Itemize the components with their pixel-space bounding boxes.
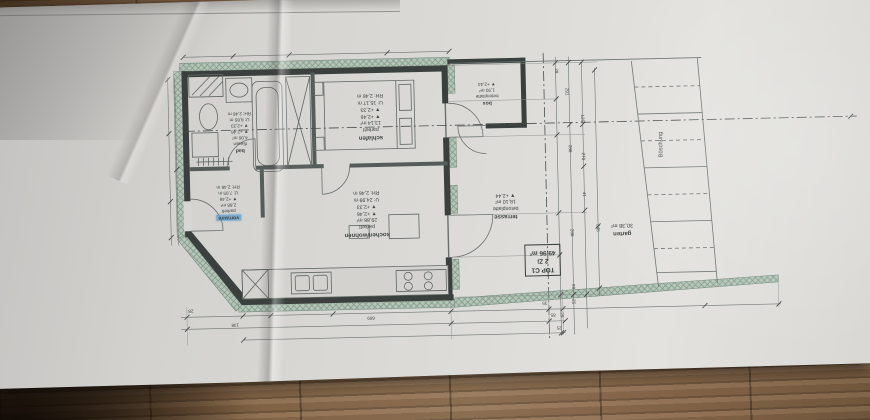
shower [189, 74, 223, 97]
room-floor: fliesen [228, 140, 251, 146]
room-height: RH: 2,46 m [344, 189, 389, 197]
room-name: bad [229, 146, 252, 153]
room-label-schlafen: schlafen parkett 13,14 m² ▼ +2,46 ▼ +2,3… [357, 92, 384, 141]
room-height: RH: 2,46 m [216, 184, 241, 191]
unit-id: TOP C1 [530, 264, 556, 273]
room-area: 4,06 m² [228, 134, 251, 140]
room-label-box: box betonplatte 1,93 m² ▼ +2,44 [475, 81, 498, 106]
room-level: ▼ +2,46 [357, 112, 383, 119]
room-perimeter: U: 7,05 m [216, 190, 241, 197]
dimension-number: 41 [582, 192, 587, 197]
room-height: RH: 2,46 m [357, 92, 383, 99]
dimension-number: 288 [570, 229, 575, 237]
room-label-vorraum: vorraum parkett 2,88 m² ▼ +2,46 U: 7,05 … [216, 184, 242, 221]
room-perimeter: U: 8,85 m [228, 117, 251, 123]
dimension-number: 125 [580, 114, 585, 122]
paper-sheet: schlafen parkett 13,14 m² ▼ +2,46 ▼ +2,3… [0, 0, 870, 420]
photo-of-floor-plan: schlafen parkett 13,14 m² ▼ +2,46 ▼ +2,3… [0, 0, 870, 420]
room-floor: betonplatte [476, 93, 499, 99]
room-label-bad: bad fliesen 4,06 m² ▼ +2,46 ▼ +2,33 U: 8… [228, 111, 252, 154]
room-perimeter: U: 15,17 m [357, 98, 383, 105]
dimension-number: 288 [568, 145, 573, 153]
washing-machine [192, 133, 219, 158]
radiator [196, 157, 232, 166]
room-floor: betonplatte [493, 204, 519, 211]
shaft-cross [286, 76, 312, 167]
room-name: box [476, 99, 499, 106]
room-name: terrasse [493, 211, 519, 219]
room-area: 13,14 m² [357, 119, 383, 126]
dimension-number: 28 [188, 309, 193, 314]
entry-opening [183, 201, 192, 231]
dimension-number: 99 [571, 284, 576, 289]
room-level: ▼ +2,33 [228, 122, 251, 128]
kitchen-counter [242, 265, 449, 299]
room-name: vorraum [216, 214, 241, 221]
room-label-kochen-wohnen: kochen/wohnen parkett 29,88 m² ▼ +2,46 ▼… [344, 189, 390, 238]
room-level: ▼ +2,44 [492, 191, 518, 198]
slope-ladder [631, 57, 717, 287]
dimension-number: 291 [564, 88, 569, 96]
room-level: ▼ +2,44 [475, 81, 498, 87]
room-level: ▼ +2,46 [344, 209, 389, 217]
dimension-number: 345 [596, 224, 601, 232]
room-level: ▼ +2,33 [357, 105, 383, 112]
dimension-number: 270 [581, 152, 586, 160]
paper-sheet-wrap: schlafen parkett 13,14 m² ▼ +2,46 ▼ +2,3… [0, 0, 870, 420]
room-name: kochen/wohnen [344, 229, 390, 238]
floor-plan-drawing [0, 0, 870, 420]
room-height: RH: 2,46 m [228, 111, 251, 117]
toilet [199, 104, 218, 130]
slope-label: Böschung [658, 132, 665, 158]
room-name: schlafen [358, 132, 384, 140]
dimension-number: 35 [542, 301, 547, 306]
dimension-number: 29 [560, 312, 565, 317]
dimension-number: 29 [554, 68, 559, 73]
terrace-door-arc [448, 103, 483, 138]
room-area: 30,38 m² [611, 221, 633, 229]
room-level: ▼ +2,33 [344, 202, 389, 210]
room-perimeter: U: 24,99 m [344, 195, 389, 203]
washbasin [226, 78, 253, 103]
room-area: 29,88 m² [344, 216, 389, 224]
dimension-number: 85 [550, 312, 555, 317]
room-level: ▼ +2,46 [228, 128, 251, 134]
room-name: garten [611, 228, 633, 236]
terrace-door-arc-2 [451, 214, 494, 257]
marker-highlight: vorraum [216, 214, 241, 221]
dimension-number: 25 [571, 299, 576, 304]
room-area: 2,88 m² [216, 202, 241, 209]
room-level: ▼ +2,46 [216, 196, 241, 203]
dimension-number: 25 [557, 325, 562, 330]
room-area: 18,10 m² [493, 198, 519, 205]
unit-total-area: 49,96 m² [530, 247, 556, 256]
room-label-garten: garten 30,38 m² [611, 221, 633, 237]
room-label-terrasse: terrasse betonplatte 18,10 m² ▼ +2,44 [492, 191, 518, 220]
dimension-number: 669 [367, 316, 375, 321]
bathtub [252, 81, 284, 172]
floor-plan: schlafen parkett 13,14 m² ▼ +2,46 ▼ +2,3… [0, 0, 870, 420]
dimension-number: 138 [231, 323, 239, 328]
unit-summary-box: TOP C1 2 Zi 49,96 m² [525, 244, 561, 277]
table [389, 214, 420, 239]
